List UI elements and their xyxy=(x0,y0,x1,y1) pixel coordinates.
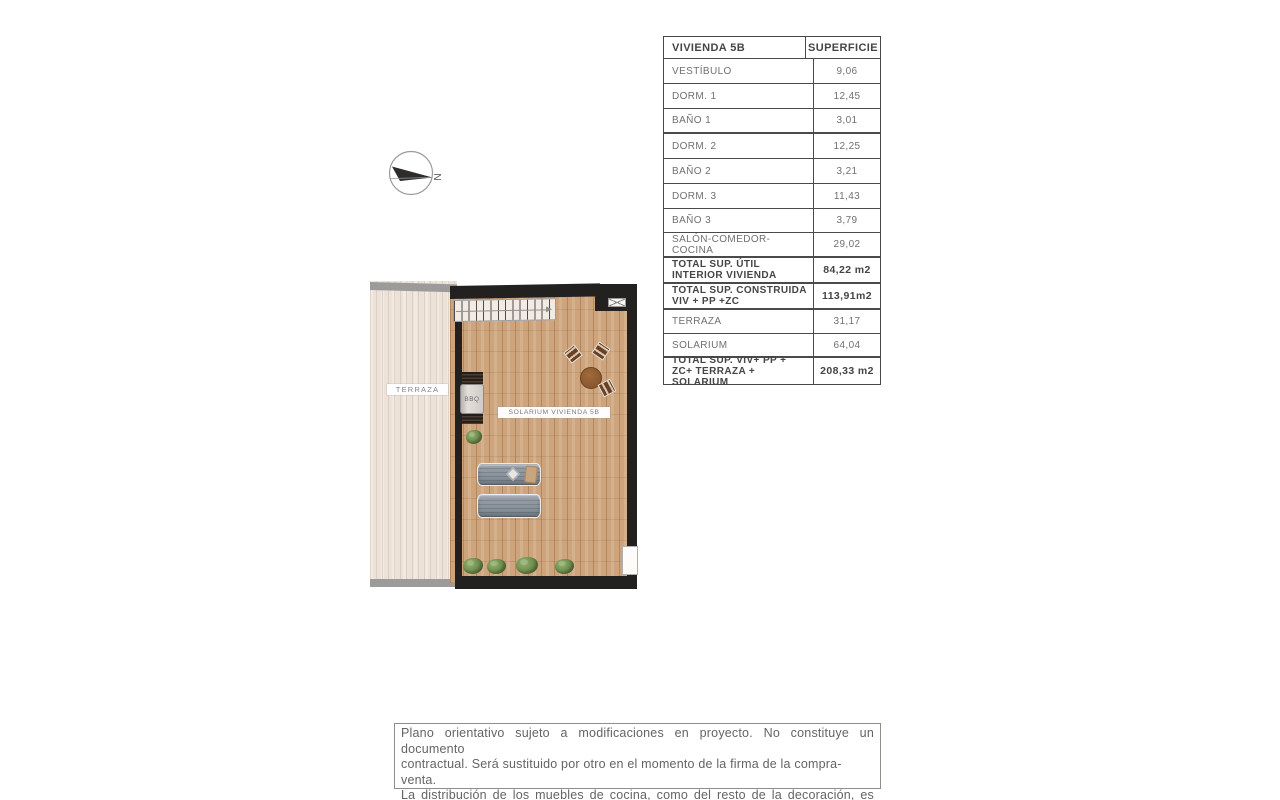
table-row: BAÑO 2 3,21 xyxy=(664,159,880,184)
wall-left xyxy=(455,321,462,577)
wall-bottom xyxy=(455,576,637,589)
sun-lounger xyxy=(477,494,541,518)
terraza-area xyxy=(370,281,457,585)
row-label: DORM. 2 xyxy=(664,134,814,158)
table-header-name: VIVIENDA 5B xyxy=(664,37,806,58)
bbq-counter-top xyxy=(462,372,483,384)
row-label: BAÑO 3 xyxy=(664,209,814,232)
table-row: TERRAZA 31,17 xyxy=(664,310,880,334)
lounger-towel-detail xyxy=(506,467,520,481)
disclaimer-line: contractual. Será sustituido por otro en… xyxy=(401,757,874,788)
terraza-label: TERRAZA xyxy=(387,384,448,395)
row-label: TOTAL SUP. VIV+ PP + ZC+ TERRAZA + SOLAR… xyxy=(664,358,814,384)
bbq: BBQ xyxy=(460,384,484,414)
table-header-area: SUPERFICIE xyxy=(806,37,880,58)
lounger-pillow xyxy=(524,465,538,483)
row-value: 9,06 xyxy=(814,59,880,83)
wall-top xyxy=(450,283,600,299)
row-label: DORM. 1 xyxy=(664,84,814,108)
wall-right xyxy=(627,285,637,588)
north-compass-icon: N xyxy=(388,149,446,199)
table-row: DORM. 2 12,25 xyxy=(664,134,880,159)
plan-sheet: N BBQ TERRA xyxy=(0,0,1280,800)
row-label: TOTAL SUP. ÚTIL INTERIOR VIVIENDA xyxy=(664,258,814,282)
row-value: 12,25 xyxy=(814,134,880,158)
table-row-total: TOTAL SUP. VIV+ PP + ZC+ TERRAZA + SOLAR… xyxy=(664,358,880,384)
row-value: 29,02 xyxy=(814,233,880,256)
disclaimer-line: Plano orientativo sujeto a modificacione… xyxy=(401,726,874,757)
row-value: 12,45 xyxy=(814,84,880,108)
row-value: 3,21 xyxy=(814,159,880,183)
wall-notch xyxy=(622,546,638,575)
row-label: BAÑO 1 xyxy=(664,109,814,132)
bbq-counter-bottom xyxy=(462,414,483,424)
table-row: DORM. 1 12,45 xyxy=(664,84,880,109)
table-header-row: VIVIENDA 5B SUPERFICIE xyxy=(664,37,880,59)
row-label: VESTÍBULO xyxy=(664,59,814,83)
skylight-icon xyxy=(608,298,626,307)
row-value: 208,33 m2 xyxy=(814,358,880,384)
row-label: BAÑO 2 xyxy=(664,159,814,183)
surface-table: VIVIENDA 5B SUPERFICIE VESTÍBULO 9,06 DO… xyxy=(663,36,881,385)
sun-lounger xyxy=(477,463,541,486)
row-label: SALÓN-COMEDOR-COCINA xyxy=(664,233,814,256)
row-value: 113,91m2 xyxy=(814,284,880,308)
table-row: BAÑO 1 3,01 xyxy=(664,109,880,134)
row-label: TERRAZA xyxy=(664,310,814,333)
row-value: 3,01 xyxy=(814,109,880,132)
terraza-bottom-edge xyxy=(370,579,457,587)
disclaimer-box: Plano orientativo sujeto a modificacione… xyxy=(394,723,881,789)
row-label: TOTAL SUP. CONSTRUIDA VIV + PP +ZC xyxy=(664,284,814,308)
bbq-label: BBQ xyxy=(464,396,479,403)
table-row-total: TOTAL SUP. CONSTRUIDA VIV + PP +ZC 113,9… xyxy=(664,284,880,310)
floor-plan: BBQ TERRAZA SOLARIUM VIVIENDA 5B xyxy=(370,281,638,590)
row-value: 11,43 xyxy=(814,184,880,208)
row-value: 3,79 xyxy=(814,209,880,232)
table-row: DORM. 3 11,43 xyxy=(664,184,880,209)
solarium-label: SOLARIUM VIVIENDA 5B xyxy=(498,407,610,418)
table-row: VESTÍBULO 9,06 xyxy=(664,59,880,84)
row-value: 31,17 xyxy=(814,310,880,333)
disclaimer-line: La distribución de los muebles de cocina… xyxy=(401,788,874,800)
north-label: N xyxy=(431,173,442,180)
table-row-total: TOTAL SUP. ÚTIL INTERIOR VIVIENDA 84,22 … xyxy=(664,258,880,284)
staircase xyxy=(453,298,556,322)
row-label: DORM. 3 xyxy=(664,184,814,208)
table-row: BAÑO 3 3,79 xyxy=(664,209,880,233)
row-value: 64,04 xyxy=(814,334,880,356)
row-value: 84,22 m2 xyxy=(814,258,880,282)
table-row: SALÓN-COMEDOR-COCINA 29,02 xyxy=(664,233,880,258)
row-label: SOLARIUM xyxy=(664,334,814,356)
